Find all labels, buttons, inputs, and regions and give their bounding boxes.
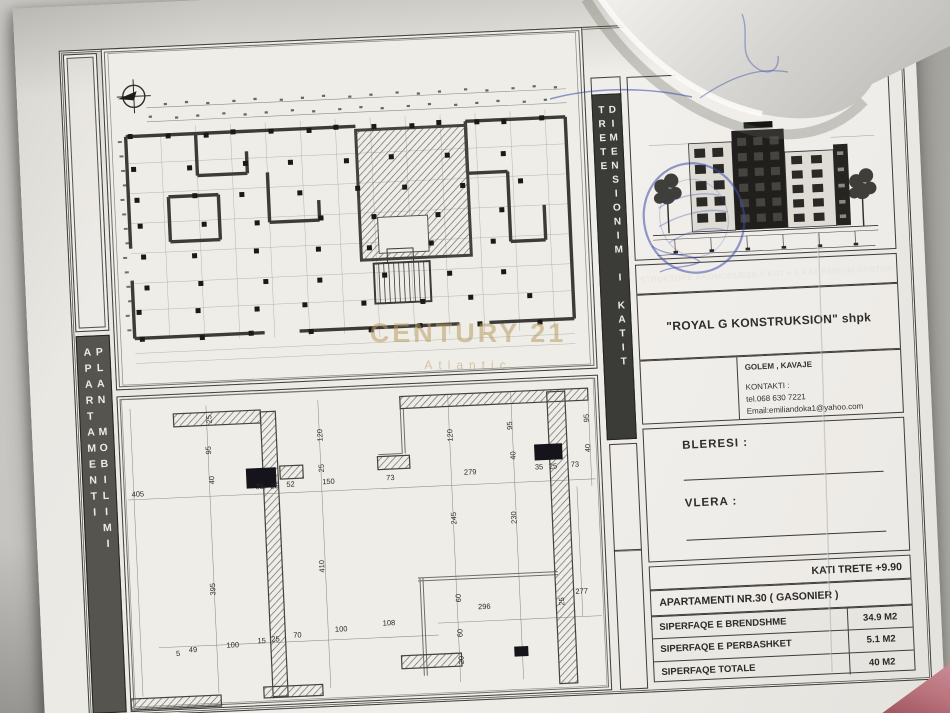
pen-scribble [550, 14, 788, 99]
photographed-blueprint-scene: PLAN MOBILIMI APARTAMENTI [0, 0, 950, 713]
ink-annotations [0, 0, 950, 713]
